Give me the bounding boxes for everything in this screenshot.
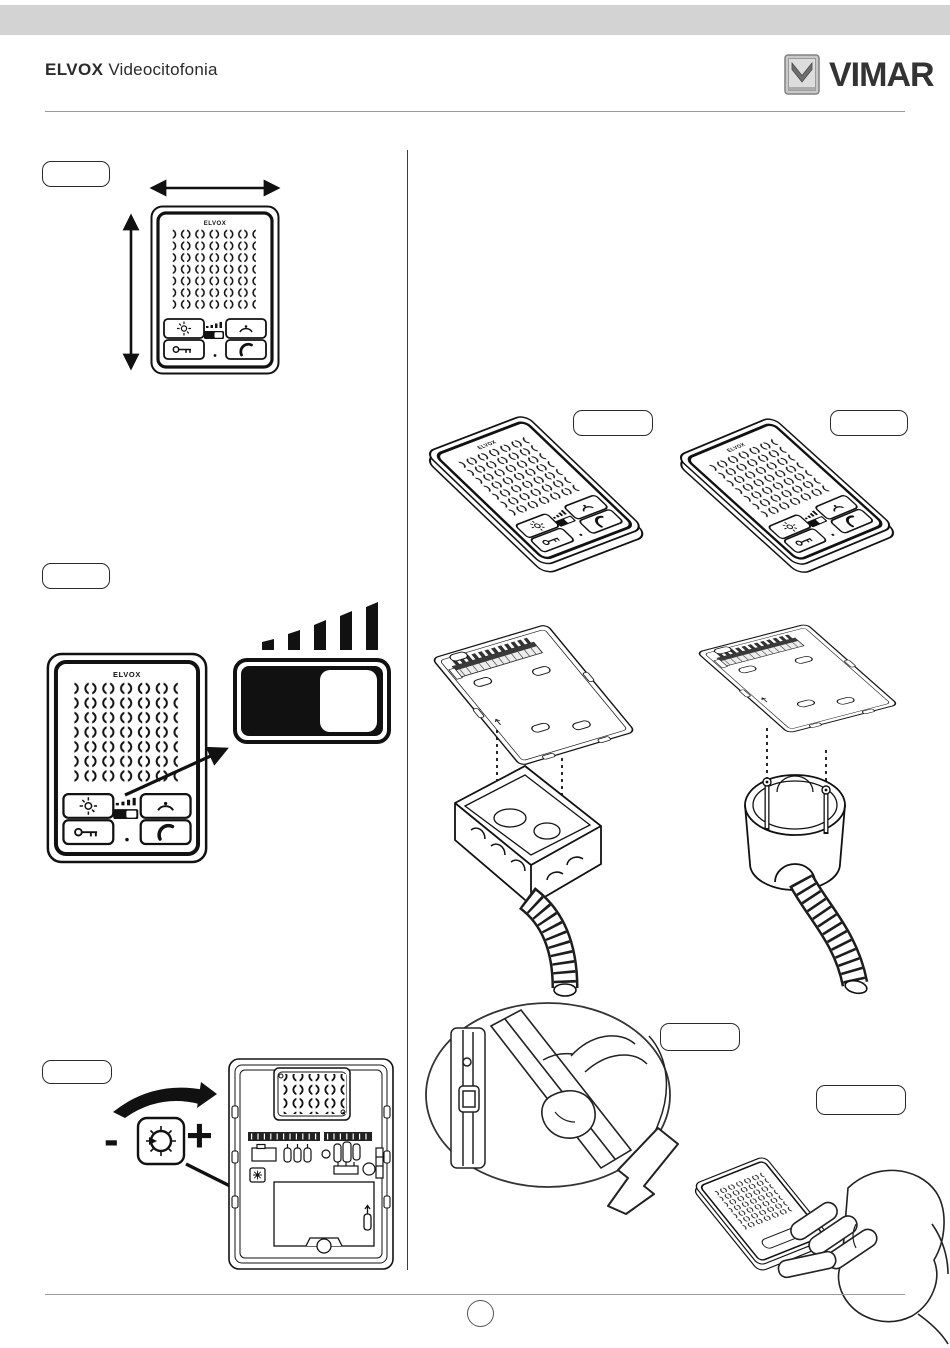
figure-label-box xyxy=(42,161,110,187)
dimension-arrow-horizontal xyxy=(140,178,290,198)
flush-mount-round-diagram xyxy=(668,612,930,1020)
column-divider xyxy=(407,150,408,1270)
header-brand: ELVOX Videocitofonia xyxy=(45,60,218,80)
vimar-logo: VIMAR xyxy=(783,52,950,98)
figure-label-box xyxy=(660,1023,740,1051)
corrugated-conduit xyxy=(801,880,868,995)
mounting-plate xyxy=(431,624,637,767)
figure-label-box xyxy=(816,1085,906,1115)
rectangular-back-box xyxy=(455,766,601,905)
rotate-arrow xyxy=(105,1078,235,1118)
terminal-strip xyxy=(248,1132,372,1141)
figure-label-box xyxy=(42,563,110,589)
thumb xyxy=(542,1091,595,1138)
volume-potentiometer xyxy=(250,1168,265,1182)
holding-hand xyxy=(777,1170,948,1344)
panel-internal-rear-view xyxy=(226,1056,396,1272)
volume-slider-zoom xyxy=(235,660,389,742)
mounting-plate xyxy=(696,624,900,734)
figure-label-box xyxy=(573,410,653,436)
vimar-logo-text: VIMAR xyxy=(829,58,934,92)
entrance-panel-3d-view xyxy=(665,410,910,610)
expansion-area xyxy=(274,1182,374,1253)
header-rule xyxy=(45,111,905,112)
vimar-logo-icon xyxy=(783,53,823,97)
top-gray-bar xyxy=(0,5,950,35)
minus-sign: - xyxy=(104,1118,119,1162)
direction-outline-arrow xyxy=(598,1122,690,1218)
entrance-panel-front-view xyxy=(150,205,280,375)
flush-mount-rectangular-diagram xyxy=(415,618,665,1018)
volume-adjustment-detail xyxy=(232,598,394,746)
potentiometer-icon xyxy=(136,1116,186,1166)
dimension-arrow-vertical xyxy=(118,206,144,378)
panel-edge-detail xyxy=(451,1028,485,1168)
cover-in-hand xyxy=(680,1128,950,1348)
figure-label-box xyxy=(42,1060,112,1084)
footer-rule xyxy=(45,1294,905,1295)
pointer-arrow xyxy=(116,738,240,802)
figure-label-box xyxy=(830,410,908,436)
manual-page: ELVOX xyxy=(0,0,950,1348)
header-brand-subtitle: Videocitofonia xyxy=(108,60,217,79)
round-back-box xyxy=(745,775,845,890)
plus-sign: + xyxy=(186,1112,213,1158)
page-number-circle xyxy=(467,1300,494,1327)
volume-bars-icon xyxy=(262,602,378,650)
speaker-unit xyxy=(274,1068,350,1120)
corrugated-conduit xyxy=(527,898,576,996)
header-brand-bold: ELVOX xyxy=(45,60,103,79)
